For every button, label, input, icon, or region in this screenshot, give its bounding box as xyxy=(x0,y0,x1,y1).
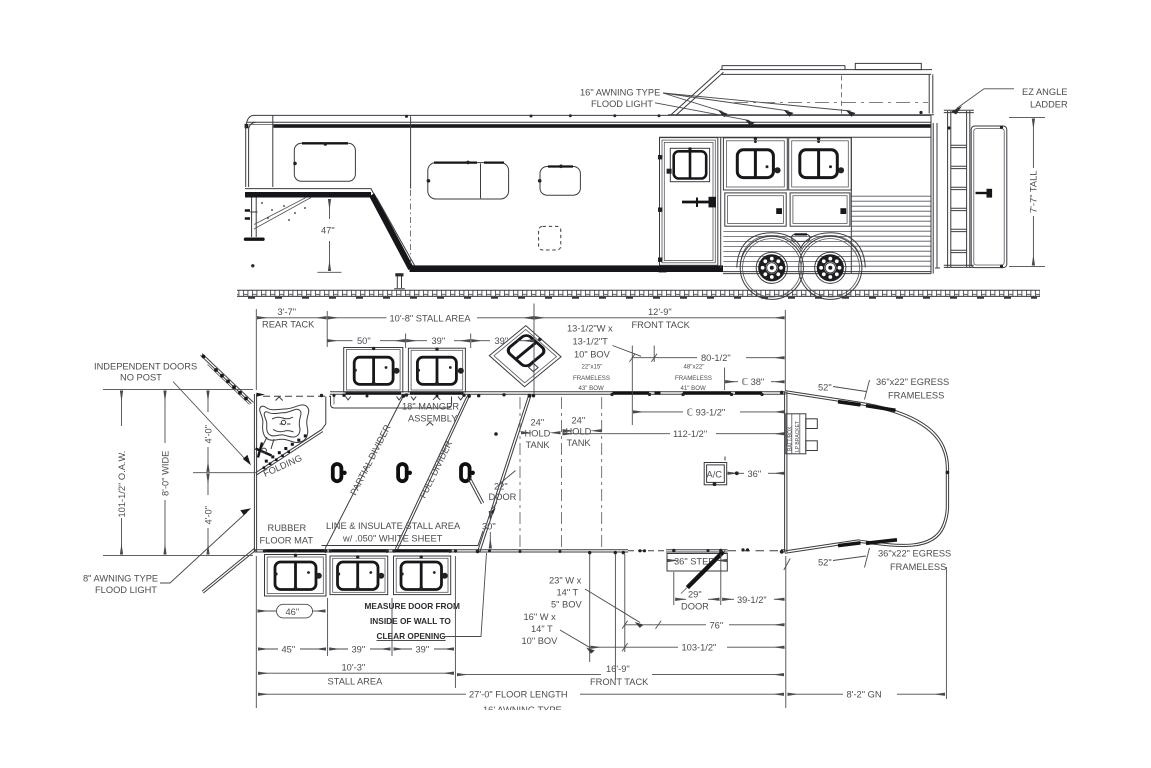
svg-text:FRAMELESS: FRAMELESS xyxy=(675,375,712,382)
svg-text:103-1/2": 103-1/2" xyxy=(682,643,717,653)
svg-text:8" AWNING TYPE: 8" AWNING TYPE xyxy=(83,574,158,584)
svg-text:22"x15": 22"x15" xyxy=(582,364,603,371)
svg-text:10" BOV: 10" BOV xyxy=(522,636,559,646)
svg-text:16" AWNING TYPE: 16" AWNING TYPE xyxy=(580,88,660,98)
svg-text:36"x22" EGRESS: 36"x22" EGRESS xyxy=(878,549,951,559)
svg-text:43" BOW: 43" BOW xyxy=(579,385,604,392)
svg-text:w/ .050" WHITE SHEET: w/ .050" WHITE SHEET xyxy=(342,534,443,544)
svg-text:FRAMELESS: FRAMELESS xyxy=(573,375,610,382)
svg-text:EZ ANGLE: EZ ANGLE xyxy=(1022,87,1067,97)
svg-text:FLOOD LIGHT: FLOOD LIGHT xyxy=(95,585,157,595)
svg-text:REAR TACK: REAR TACK xyxy=(262,319,315,329)
svg-text:36"x22" EGRESS: 36"x22" EGRESS xyxy=(876,377,949,387)
svg-text:16'-9": 16'-9" xyxy=(606,664,630,674)
svg-text:36": 36" xyxy=(748,469,762,479)
svg-text:ℂ 38": ℂ 38" xyxy=(742,377,765,387)
svg-text:FRONT TACK: FRONT TACK xyxy=(590,677,649,687)
svg-text:INSIDE OF WALL TO: INSIDE OF WALL TO xyxy=(370,616,451,626)
svg-text:14" T: 14" T xyxy=(557,588,579,598)
svg-text:48"x22": 48"x22" xyxy=(684,364,705,371)
svg-text:TANK: TANK xyxy=(567,438,592,448)
svg-text:NO POST: NO POST xyxy=(120,373,162,383)
svg-text:ℂ 93-1/2": ℂ 93-1/2" xyxy=(687,407,726,417)
svg-text:27'-0" FLOOR LENGTH: 27'-0" FLOOR LENGTH xyxy=(469,690,568,700)
svg-text:23" W x: 23" W x xyxy=(549,576,582,586)
svg-text:LADDER: LADDER xyxy=(1030,100,1068,110)
svg-text:39": 39" xyxy=(432,336,446,346)
svg-text:22": 22" xyxy=(494,482,508,492)
svg-text:76": 76" xyxy=(710,620,724,630)
svg-text:8'-2" GN: 8'-2" GN xyxy=(847,690,882,700)
svg-text:12'-9": 12'-9" xyxy=(648,307,672,317)
svg-text:16" W x: 16" W x xyxy=(524,612,557,622)
svg-text:MEASURE DOOR FROM: MEASURE DOOR FROM xyxy=(365,601,461,611)
svg-text:41" BOW: 41" BOW xyxy=(681,385,706,392)
svg-text:50": 50" xyxy=(357,336,371,346)
svg-text:10" BOV: 10" BOV xyxy=(574,350,611,360)
svg-text:39": 39" xyxy=(416,645,430,655)
svg-text:FLOOR MAT: FLOOR MAT xyxy=(260,536,314,546)
svg-text:FRONT TACK: FRONT TACK xyxy=(632,320,691,330)
svg-text:52": 52" xyxy=(818,382,832,392)
svg-text:4'-0": 4'-0" xyxy=(204,425,214,444)
svg-text:FRAMELESS: FRAMELESS xyxy=(888,391,944,401)
svg-text:5" BOV: 5" BOV xyxy=(551,600,582,610)
svg-text:39-1/2": 39-1/2" xyxy=(737,595,767,605)
svg-text:46": 46" xyxy=(286,607,300,617)
svg-text:24": 24" xyxy=(531,418,545,428)
svg-text:8'-0" WIDE: 8'-0" WIDE xyxy=(161,451,171,496)
svg-text:STALL AREA: STALL AREA xyxy=(328,677,384,687)
svg-text:LP BRACKET: LP BRACKET xyxy=(795,421,801,452)
svg-text:3'-7": 3'-7" xyxy=(278,307,297,317)
svg-text:18" MANGER: 18" MANGER xyxy=(402,402,459,412)
svg-text:45": 45" xyxy=(282,645,296,655)
svg-text:30": 30" xyxy=(482,522,496,532)
svg-text:39": 39" xyxy=(352,645,366,655)
svg-text:FRAMELESS: FRAMELESS xyxy=(890,562,946,572)
svg-text:7'-7" TALL: 7'-7" TALL xyxy=(1029,171,1039,213)
svg-text:FLOOD LIGHT: FLOOD LIGHT xyxy=(591,99,653,109)
svg-text:112-1/2": 112-1/2" xyxy=(673,429,707,439)
svg-text:14" T: 14" T xyxy=(531,624,553,634)
svg-text:47": 47" xyxy=(321,226,335,236)
svg-text:24": 24" xyxy=(572,416,586,426)
svg-text:29": 29" xyxy=(688,589,702,599)
svg-text:10'-3": 10'-3" xyxy=(342,663,366,673)
svg-text:39": 39" xyxy=(495,336,509,346)
svg-text:INDEPENDENT DOORS: INDEPENDENT DOORS xyxy=(94,362,197,372)
svg-text:13-1/2"T: 13-1/2"T xyxy=(573,337,609,347)
svg-text:A/C: A/C xyxy=(707,470,723,480)
svg-text:TANK: TANK xyxy=(526,440,551,450)
svg-text:4'-0": 4'-0" xyxy=(204,506,214,525)
svg-text:13-1/2"W x: 13-1/2"W x xyxy=(567,324,613,334)
svg-text:DOOR: DOOR xyxy=(681,602,709,612)
svg-text:101-1/2" O.A.W.: 101-1/2" O.A.W. xyxy=(117,451,127,518)
svg-text:52": 52" xyxy=(818,558,832,568)
svg-text:80-1/2": 80-1/2" xyxy=(701,353,731,363)
svg-text:DOOR: DOOR xyxy=(489,492,517,502)
svg-text:RUBBER: RUBBER xyxy=(268,523,307,533)
svg-text:BATT/BOX: BATT/BOX xyxy=(788,426,794,451)
svg-text:CLEAR OPENING: CLEAR OPENING xyxy=(377,631,446,641)
svg-text:LINE & INSULATE STALL AREA: LINE & INSULATE STALL AREA xyxy=(326,521,461,531)
svg-text:ASSEMBLY: ASSEMBLY xyxy=(408,413,457,423)
svg-text:10'-8" STALL AREA: 10'-8" STALL AREA xyxy=(390,313,472,323)
svg-text:HOLD: HOLD xyxy=(525,429,551,439)
svg-text:HOLD: HOLD xyxy=(566,427,592,437)
